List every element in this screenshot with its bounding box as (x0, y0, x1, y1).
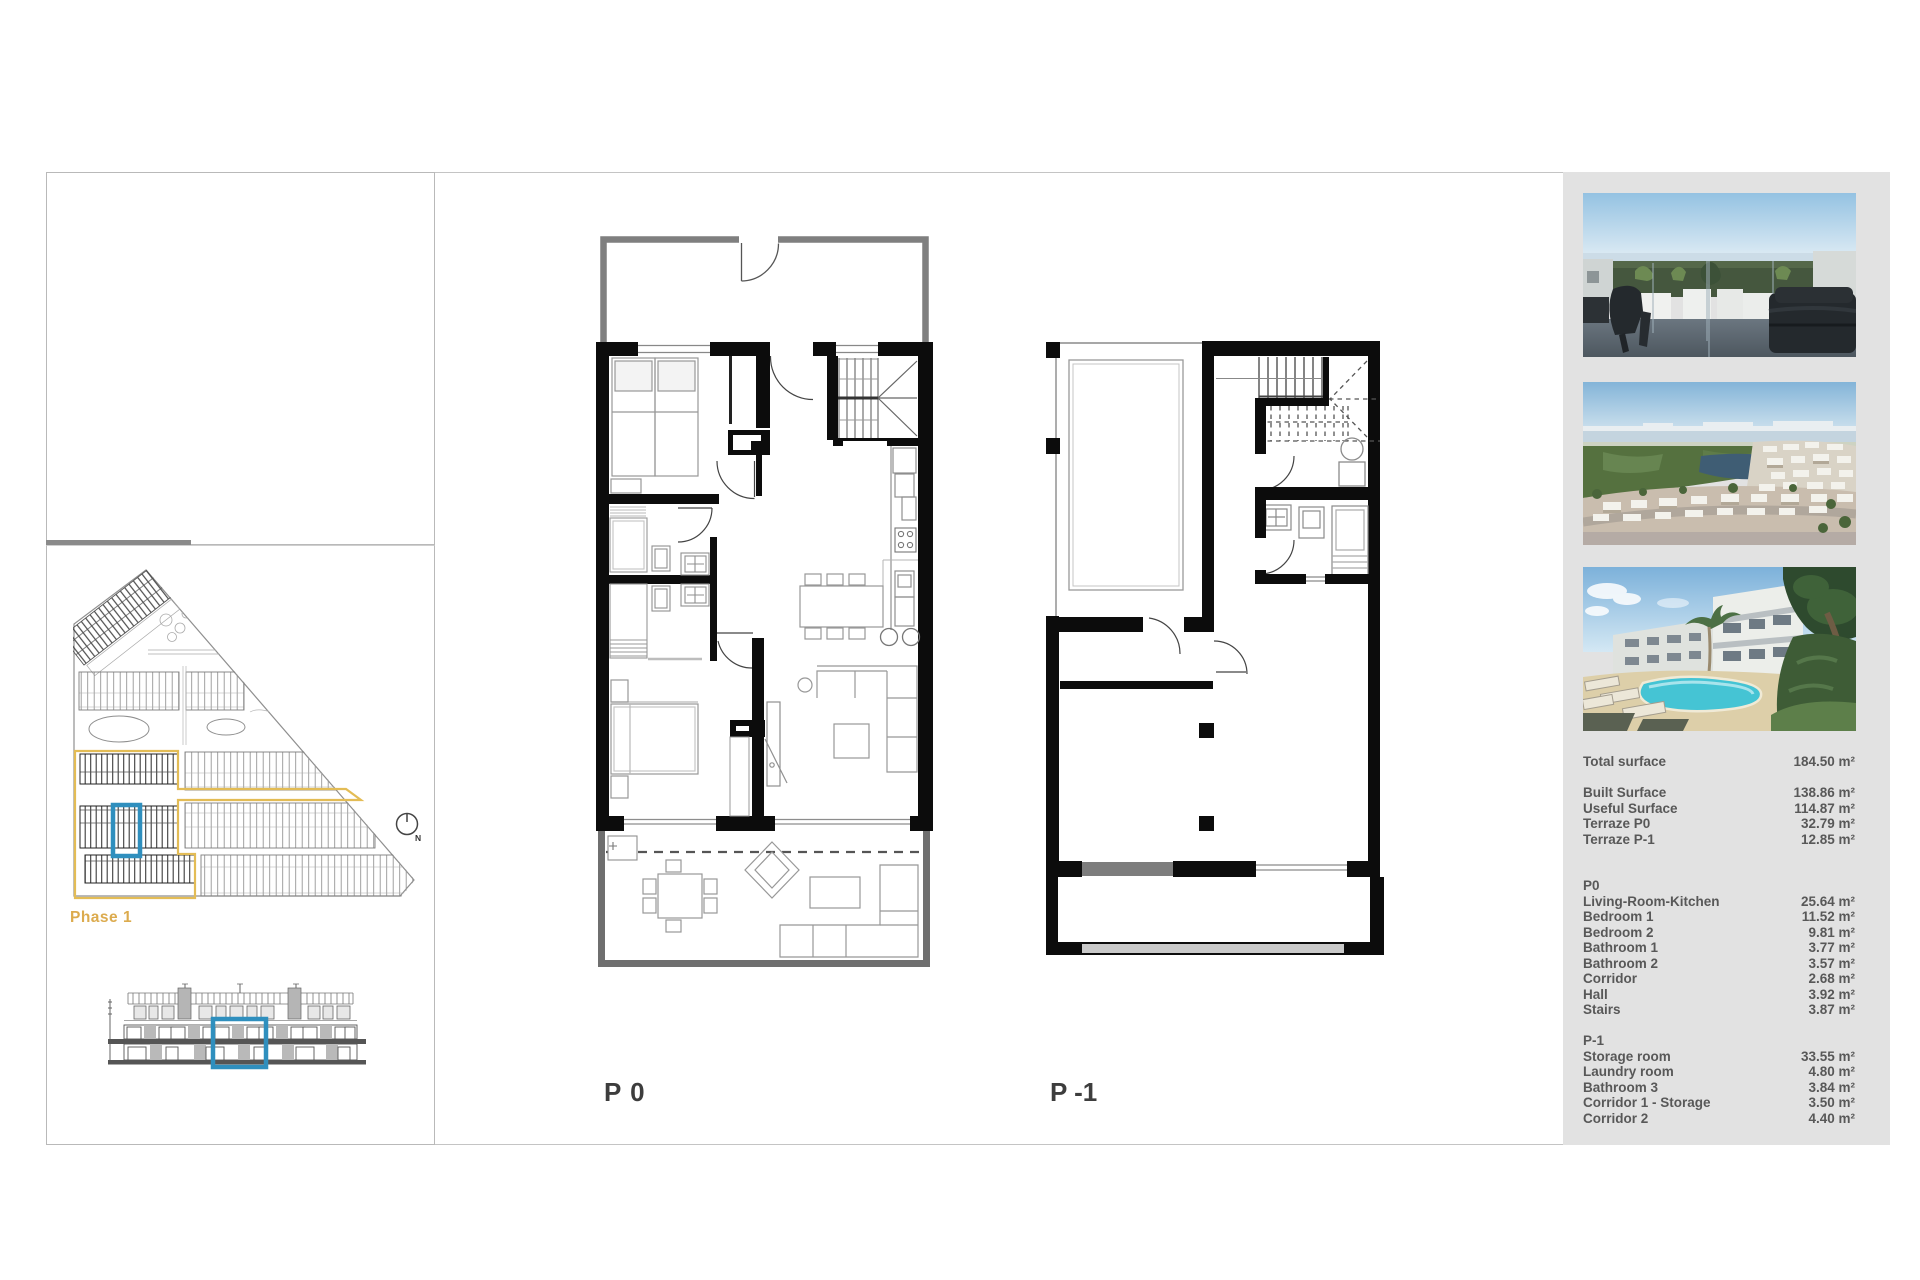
svg-text:Phase 1: Phase 1 (70, 909, 132, 926)
svg-text:N: N (415, 833, 421, 843)
